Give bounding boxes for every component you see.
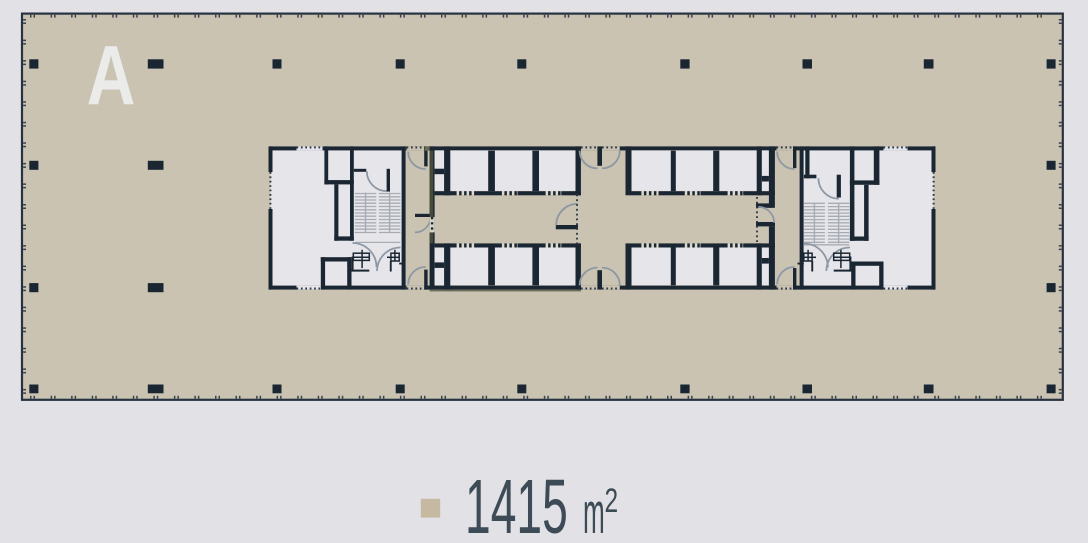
svg-text:m: m — [583, 480, 605, 543]
svg-text:A: A — [87, 29, 136, 123]
svg-text:2: 2 — [605, 482, 619, 520]
svg-text:1415: 1415 — [465, 465, 568, 543]
